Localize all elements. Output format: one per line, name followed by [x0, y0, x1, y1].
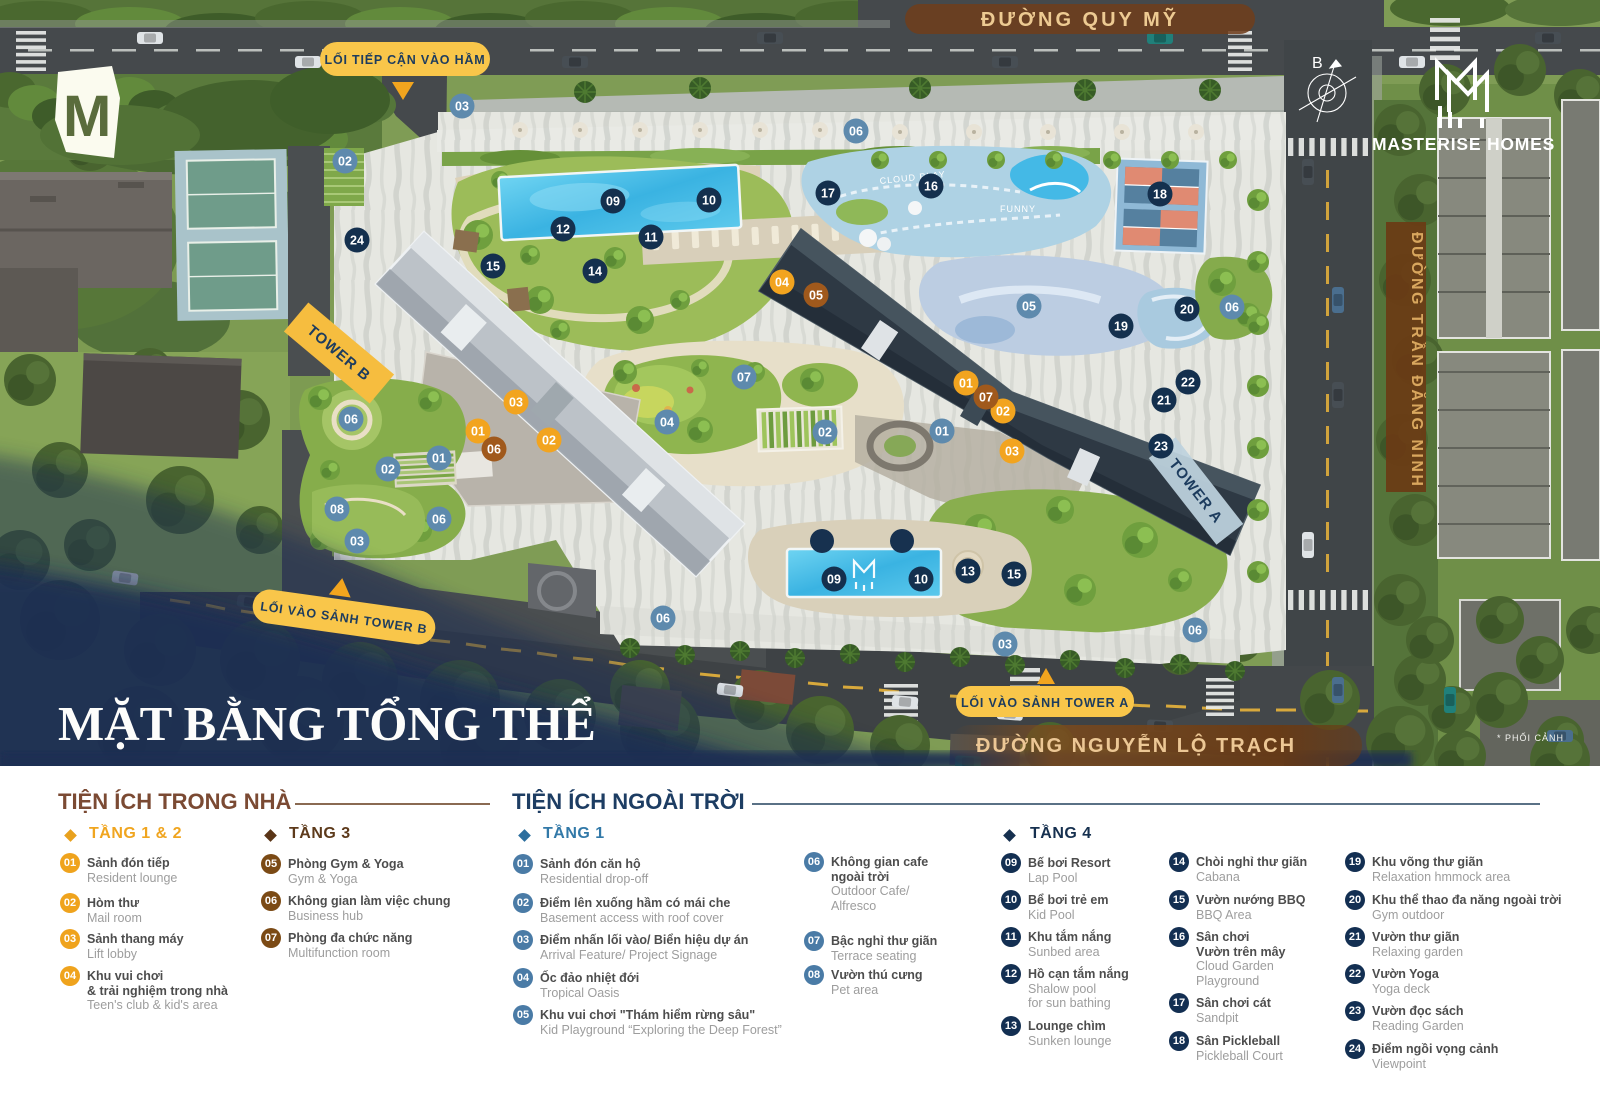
- svg-text:01: 01: [935, 425, 949, 439]
- svg-text:04: 04: [775, 276, 789, 290]
- svg-text:20: 20: [1180, 303, 1194, 317]
- svg-text:02: 02: [381, 463, 395, 477]
- svg-text:03: 03: [1005, 445, 1019, 459]
- svg-text:12: 12: [556, 223, 570, 237]
- svg-text:23: 23: [1154, 440, 1168, 454]
- svg-text:10: 10: [914, 573, 928, 587]
- svg-text:04: 04: [660, 416, 674, 430]
- svg-text:14: 14: [588, 265, 602, 279]
- svg-text:05: 05: [809, 289, 823, 303]
- svg-text:07: 07: [737, 371, 751, 385]
- svg-text:22: 22: [1181, 376, 1195, 390]
- svg-text:* PHỐI CẢNH: * PHỐI CẢNH: [1497, 732, 1564, 743]
- svg-text:MASTERISE HOMES: MASTERISE HOMES: [1372, 134, 1555, 154]
- svg-text:05: 05: [1022, 300, 1036, 314]
- svg-text:18: 18: [1153, 188, 1167, 202]
- svg-text:02: 02: [542, 434, 556, 448]
- svg-text:02: 02: [338, 155, 352, 169]
- svg-text:19: 19: [1114, 320, 1128, 334]
- svg-text:B: B: [1312, 55, 1323, 72]
- svg-text:02: 02: [818, 426, 832, 440]
- svg-text:01: 01: [432, 452, 446, 466]
- svg-text:06: 06: [1188, 624, 1202, 638]
- svg-text:06: 06: [849, 125, 863, 139]
- svg-text:09: 09: [606, 195, 620, 209]
- svg-text:FUNNY: FUNNY: [1000, 204, 1036, 214]
- svg-text:ĐƯỜNG TRẦN ĐĂNG NINH: ĐƯỜNG TRẦN ĐĂNG NINH: [1408, 232, 1427, 488]
- svg-text:15: 15: [486, 260, 500, 274]
- svg-text:M: M: [63, 84, 111, 149]
- svg-text:06: 06: [344, 413, 358, 427]
- svg-text:LỐI TIẾP CẬN VÀO HẦM: LỐI TIẾP CẬN VÀO HẦM: [325, 52, 486, 67]
- svg-text:07: 07: [979, 391, 993, 405]
- svg-text:03: 03: [455, 100, 469, 114]
- svg-text:02: 02: [996, 405, 1010, 419]
- svg-text:24: 24: [350, 234, 364, 248]
- svg-text:03: 03: [998, 638, 1012, 652]
- svg-text:10: 10: [702, 194, 716, 208]
- svg-text:16: 16: [924, 180, 938, 194]
- svg-text:06: 06: [656, 612, 670, 626]
- svg-text:06: 06: [487, 443, 501, 457]
- svg-text:03: 03: [509, 396, 523, 410]
- svg-text:13: 13: [961, 565, 975, 579]
- svg-text:15: 15: [1007, 568, 1021, 582]
- svg-text:01: 01: [471, 425, 485, 439]
- svg-text:06: 06: [432, 513, 446, 527]
- svg-text:09: 09: [827, 573, 841, 587]
- svg-text:LỐI VÀO SẢNH TOWER A: LỐI VÀO SẢNH TOWER A: [961, 695, 1129, 710]
- svg-text:01: 01: [959, 377, 973, 391]
- svg-text:MẶT BẰNG TỔNG THỂ: MẶT BẰNG TỔNG THỂ: [58, 696, 596, 751]
- svg-text:17: 17: [821, 187, 835, 201]
- svg-text:21: 21: [1157, 394, 1171, 408]
- svg-text:03: 03: [350, 535, 364, 549]
- svg-text:08: 08: [330, 503, 344, 517]
- svg-text:ĐƯỜNG QUY MỸ: ĐƯỜNG QUY MỸ: [981, 7, 1179, 31]
- svg-text:ĐƯỜNG NGUYỄN LỘ TRẠCH: ĐƯỜNG NGUYỄN LỘ TRẠCH: [976, 733, 1296, 757]
- svg-text:06: 06: [1225, 301, 1239, 315]
- svg-text:11: 11: [644, 231, 657, 245]
